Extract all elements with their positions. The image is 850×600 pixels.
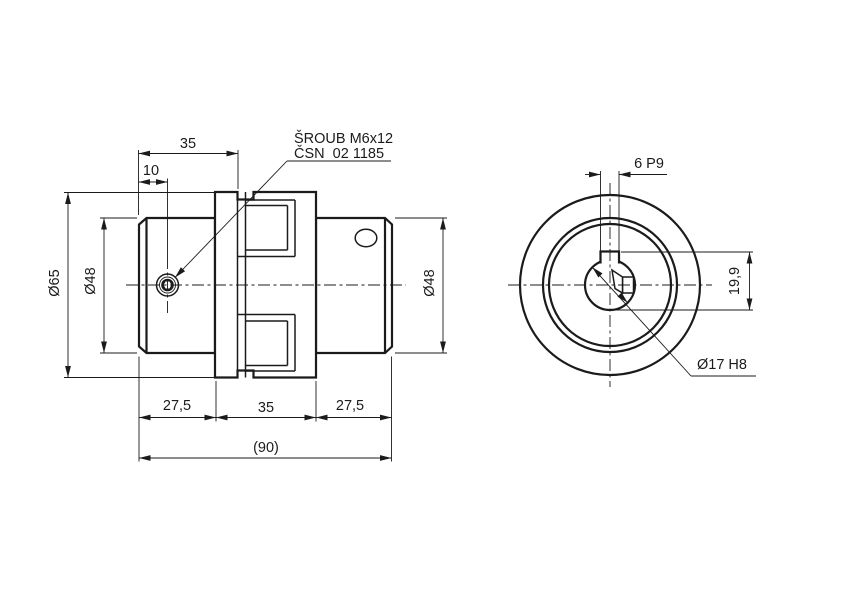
screw-note-line2: ČSN 02 1185 bbox=[294, 145, 384, 162]
side-view: 35 10 Ø65 Ø48 bbox=[47, 130, 447, 462]
dim-text-top-10: 10 bbox=[143, 163, 159, 179]
dim-text-bottom-27-5-left: 27,5 bbox=[163, 398, 191, 414]
left-hub-outline bbox=[139, 218, 215, 353]
dim-dia48-right: Ø48 bbox=[395, 218, 447, 353]
right-hub bbox=[316, 218, 392, 353]
dim-text-dia48-left: Ø48 bbox=[83, 267, 99, 294]
right-hub-setscrew-hole bbox=[355, 229, 377, 246]
dim-overall-90: (90) bbox=[139, 440, 392, 461]
claw-root-circle bbox=[549, 224, 671, 346]
dim-text-dia48-right: Ø48 bbox=[422, 269, 438, 296]
dim-text-keyway-depth: 19,9 bbox=[727, 267, 743, 295]
left-hub bbox=[139, 218, 215, 353]
dim-text-keyway-width: 6 P9 bbox=[634, 156, 664, 172]
dim-keyway-width: 6 P9 bbox=[585, 156, 667, 252]
dim-text-bottom-27-5-right: 27,5 bbox=[336, 398, 364, 414]
bore-setscrew bbox=[612, 270, 634, 293]
screw-note-line1: ŠROUB M6x12 bbox=[294, 130, 393, 147]
dim-text-top-35: 35 bbox=[180, 136, 196, 152]
end-view: 6 P9 19,9 Ø17 H8 bbox=[508, 156, 756, 387]
dim-text-bottom-35: 35 bbox=[258, 400, 274, 416]
end-view-centerlines bbox=[508, 183, 712, 387]
right-hub-outline bbox=[316, 218, 392, 353]
dim-dia48-left: Ø48 bbox=[83, 218, 137, 353]
coupling-drawing: 35 10 Ø65 Ø48 bbox=[0, 0, 850, 600]
drawing-sheet: 35 10 Ø65 Ø48 bbox=[0, 0, 850, 600]
dim-text-dia65: Ø65 bbox=[47, 269, 63, 296]
dim-text-bore: Ø17 H8 bbox=[697, 357, 747, 373]
dim-text-overall-90: (90) bbox=[253, 440, 279, 456]
